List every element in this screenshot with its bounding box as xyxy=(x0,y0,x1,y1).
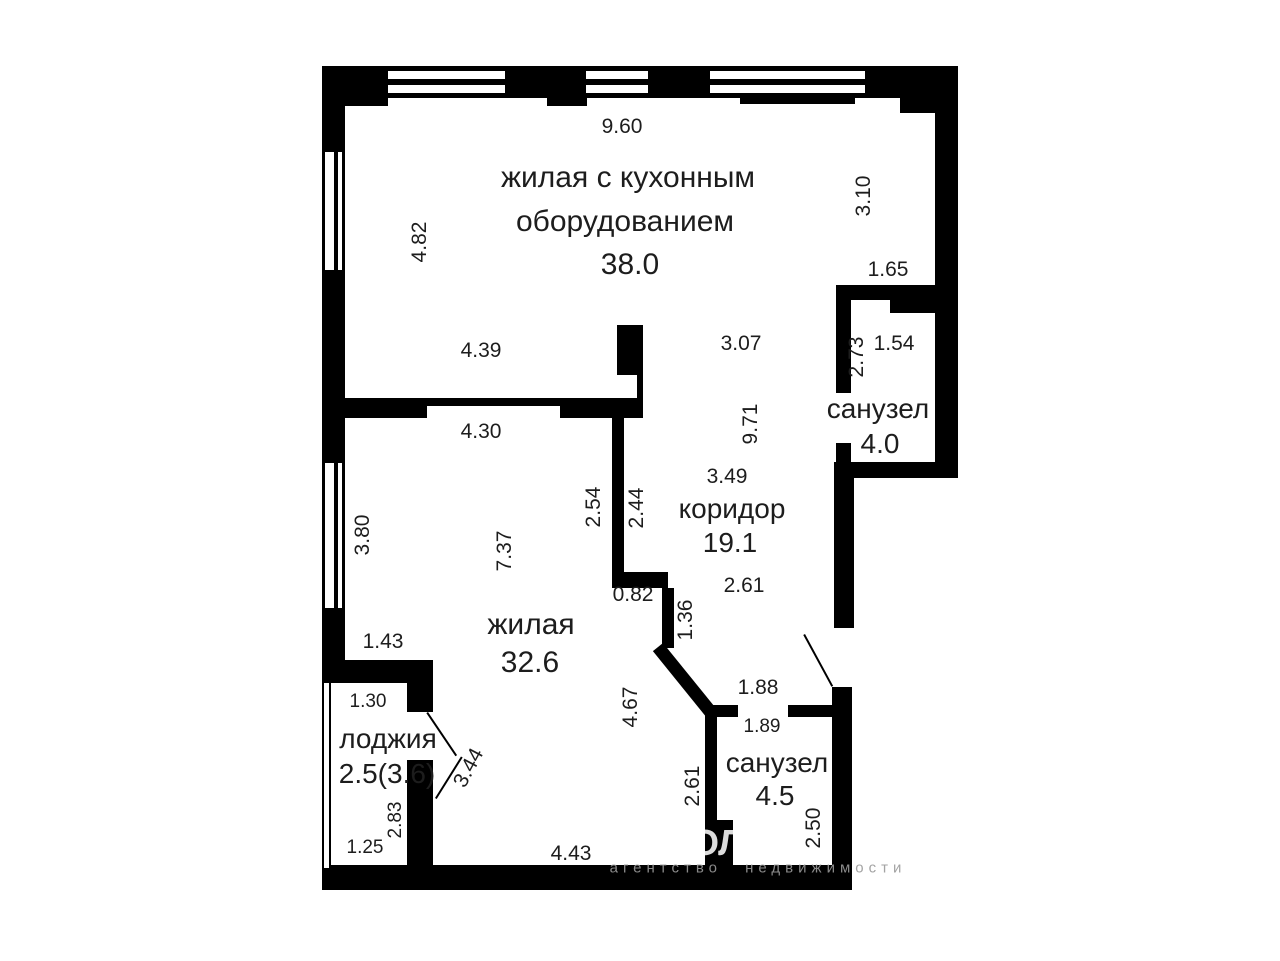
wall-right xyxy=(935,66,958,478)
dim-living-bottom-left: 1.43 xyxy=(363,630,404,654)
vent-shaft-block xyxy=(890,295,937,313)
dim-loggia-bottom-width: 1.25 xyxy=(347,837,384,859)
dim-kitchen-left-height: 4.82 xyxy=(408,222,432,263)
wall-kitchen-living-left xyxy=(343,398,427,418)
wall-living-corridor-vertical xyxy=(612,418,624,572)
wall-kitchen-pillar-strip xyxy=(637,375,643,398)
wall-corridor-right-upper xyxy=(834,462,854,628)
dim-loggia-top-width: 1.30 xyxy=(350,691,387,713)
entrance-door-swing-line xyxy=(803,634,833,687)
wall-bath-upper-bottom xyxy=(836,462,958,478)
dim-bath-lower-top-out: 1.88 xyxy=(738,676,779,700)
wall-corridor-niche xyxy=(662,588,674,648)
dim-wall-254: 2.54 xyxy=(582,487,606,528)
dim-living-height: 7.37 xyxy=(493,531,517,572)
dim-wall-244: 2.44 xyxy=(625,488,649,529)
dim-living-bottom-width: 4.43 xyxy=(551,842,592,866)
dim-kitchen-corridor-opening: 3.07 xyxy=(721,332,762,356)
room-area-kitchen-living: 38.0 xyxy=(601,248,659,282)
room-label-bathroom-lower: санузел xyxy=(726,747,829,779)
wall-corridor-right-lower xyxy=(832,687,852,868)
window-top-mid xyxy=(586,66,648,98)
watermark-logo-text: ОЛ xyxy=(705,822,733,864)
room-area-loggia: 2.5(3.6) xyxy=(339,758,436,790)
room-label-kitchen-living-line1: жилая с кухонным xyxy=(501,161,755,195)
dim-loggia-right-height: 2.83 xyxy=(385,802,407,839)
dim-bath-upper-height: 2.73 xyxy=(845,337,869,378)
room-label-living: жилая xyxy=(487,608,574,642)
dim-living-left-height: 3.80 xyxy=(351,515,375,556)
window-top-right xyxy=(710,66,865,98)
window-left-upper xyxy=(322,152,345,270)
room-area-bathroom-lower: 4.5 xyxy=(756,780,795,812)
dim-bath-upper-offset: 1.65 xyxy=(868,258,909,282)
dim-bath-lower-right-height: 2.50 xyxy=(802,808,826,849)
dim-living-right-height: 4.67 xyxy=(619,687,643,728)
window-left-lower xyxy=(322,463,345,608)
dim-kitchen-right-height: 3.10 xyxy=(852,176,876,217)
dim-bath-lower-top-in: 1.89 xyxy=(744,716,781,738)
wall-kitchen-pillar xyxy=(617,325,643,375)
wall-bath-lower-left xyxy=(705,705,717,820)
room-area-corridor: 19.1 xyxy=(703,527,758,559)
dim-corridor-width-mid: 3.49 xyxy=(707,465,748,489)
wall-kitchen-living-right xyxy=(560,398,643,418)
dim-kitchen-wall: 4.39 xyxy=(461,339,502,363)
dim-bath-lower-left-height: 2.61 xyxy=(681,766,705,807)
wall-bath-lower-top-left xyxy=(713,705,738,717)
dim-bath-upper-width: 1.54 xyxy=(874,332,915,356)
room-label-loggia: лоджия xyxy=(339,723,436,755)
dim-corridor-height: 9.71 xyxy=(739,404,763,445)
wall-bath-lower-top-right xyxy=(788,705,834,717)
dim-corridor-width-low: 2.61 xyxy=(724,574,765,598)
window-top-left xyxy=(388,66,505,98)
loggia-glazing xyxy=(322,683,331,868)
wall-living-loggia xyxy=(322,660,433,683)
wall-kitchen-living-sill xyxy=(427,398,560,406)
dim-living-top-width: 4.30 xyxy=(461,420,502,444)
dim-wall-136: 1.36 xyxy=(674,600,698,641)
wall-loggia-pillar xyxy=(407,683,433,712)
wall-top-step-mid xyxy=(547,96,587,106)
watermark-caption: агентство недвижимости xyxy=(610,860,907,877)
room-area-living: 32.6 xyxy=(501,646,559,680)
floor-plan: жилая с кухонным оборудованием 38.0 сану… xyxy=(0,0,1280,961)
room-label-kitchen-living-line2: оборудованием xyxy=(516,205,734,239)
room-label-bathroom-upper: санузел xyxy=(827,393,930,425)
dim-top-width: 9.60 xyxy=(602,115,643,139)
room-label-corridor: коридор xyxy=(679,493,786,525)
dim-wall-082: 0.82 xyxy=(613,583,654,607)
room-area-bathroom-upper: 4.0 xyxy=(861,428,900,460)
